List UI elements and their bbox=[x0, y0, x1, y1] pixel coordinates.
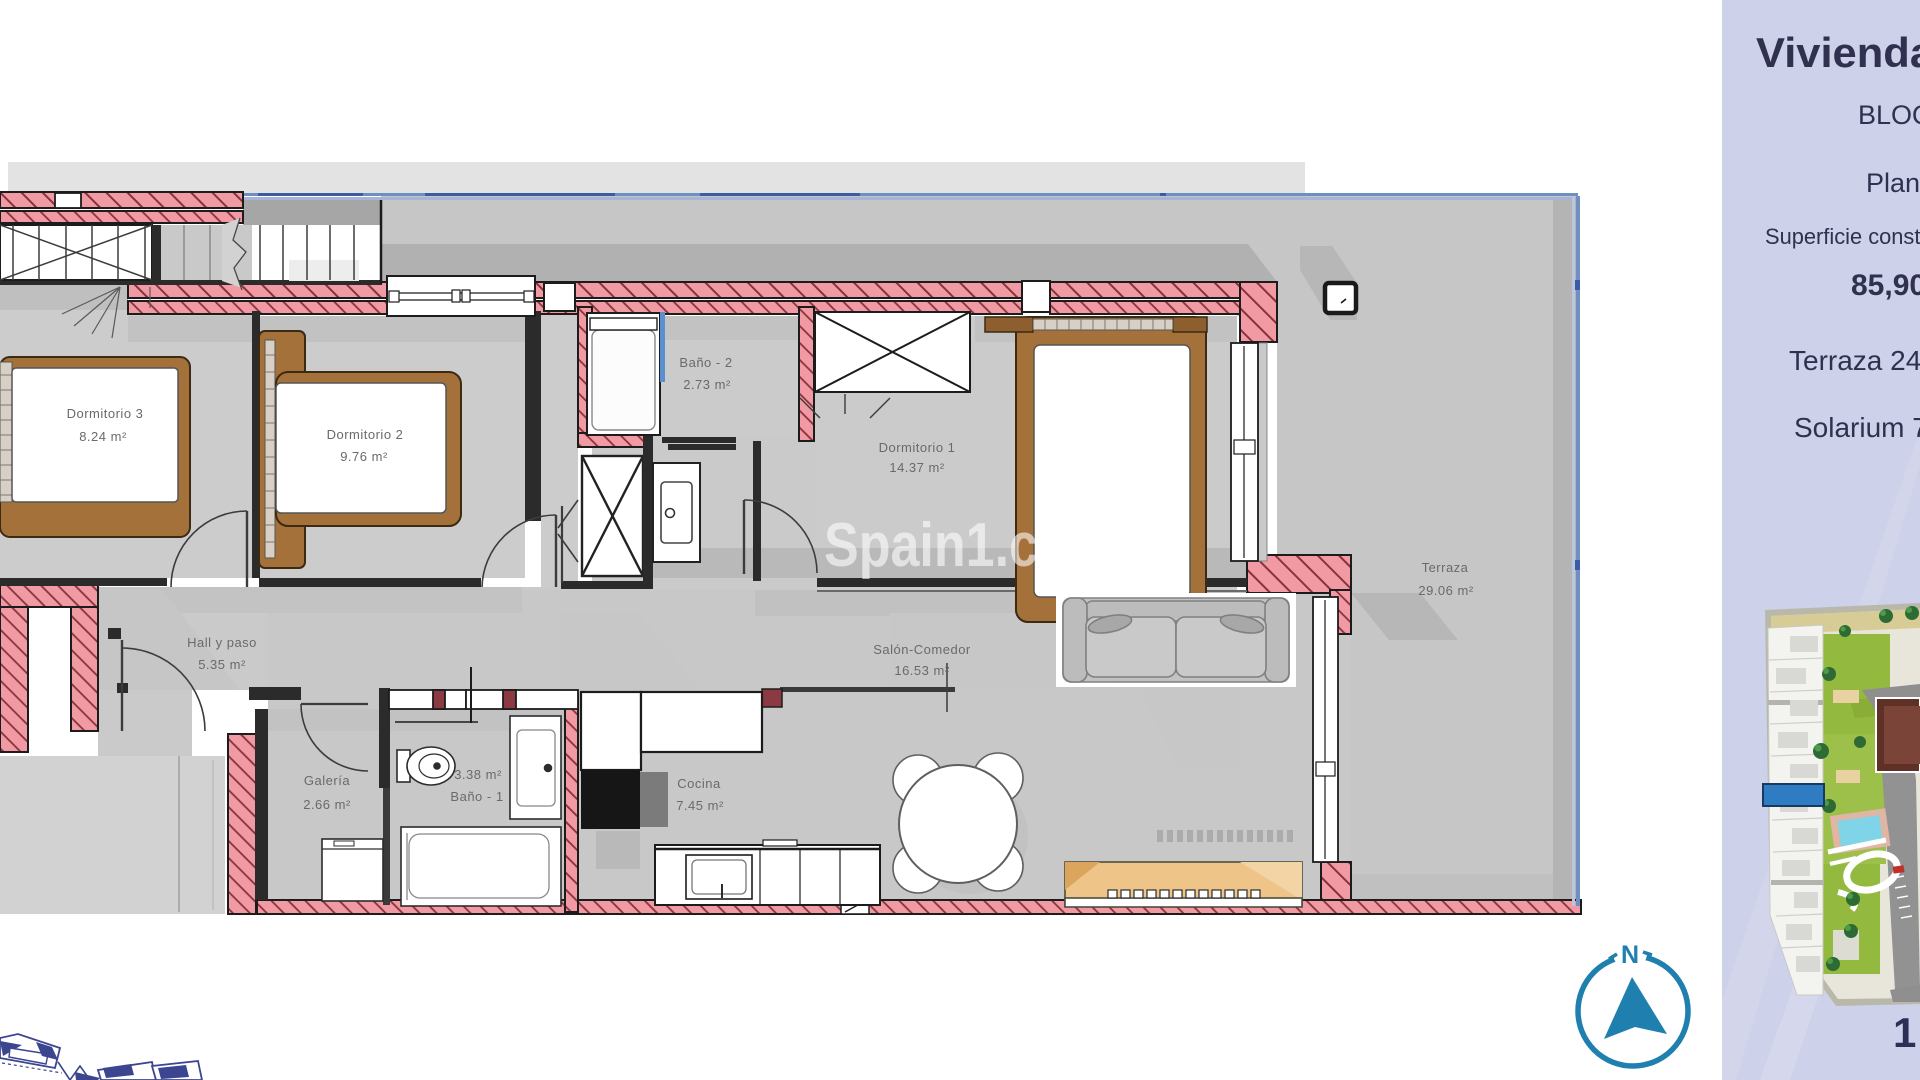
svg-text:Terraza 24,50: Terraza 24,50 bbox=[1789, 345, 1920, 376]
svg-text:Vivienda: Vivienda bbox=[1756, 29, 1920, 76]
svg-text:8.24 m²: 8.24 m² bbox=[79, 429, 127, 444]
svg-text:5.35 m²: 5.35 m² bbox=[198, 657, 246, 672]
svg-text:14.37 m²: 14.37 m² bbox=[889, 460, 944, 475]
svg-text:2.73 m²: 2.73 m² bbox=[683, 377, 731, 392]
svg-text:N: N bbox=[1621, 941, 1639, 969]
svg-text:Superficie construida: Superficie construida bbox=[1765, 224, 1920, 249]
svg-text:Dormitorio 3: Dormitorio 3 bbox=[67, 406, 144, 421]
svg-text:1: 1 bbox=[1893, 1009, 1916, 1056]
svg-text:Hall y paso: Hall y paso bbox=[187, 635, 257, 650]
svg-text:2.66 m²: 2.66 m² bbox=[303, 797, 351, 812]
svg-text:Spain1.com: Spain1.com bbox=[824, 511, 1116, 580]
svg-text:3.38 m²: 3.38 m² bbox=[454, 767, 502, 782]
svg-text:Planta: Planta bbox=[1866, 168, 1920, 198]
svg-text:85,90 m²: 85,90 m² bbox=[1851, 269, 1920, 302]
svg-text:Cocina: Cocina bbox=[677, 776, 721, 791]
svg-text:Terraza: Terraza bbox=[1422, 560, 1469, 575]
svg-text:9.76 m²: 9.76 m² bbox=[340, 449, 388, 464]
svg-text:16.53 m²: 16.53 m² bbox=[894, 663, 949, 678]
svg-text:Solarium 75: Solarium 75 bbox=[1794, 412, 1920, 443]
svg-text:Baño - 2: Baño - 2 bbox=[679, 355, 732, 370]
svg-text:BLOQUE: BLOQUE bbox=[1858, 100, 1920, 130]
svg-text:Baño - 1: Baño - 1 bbox=[450, 789, 503, 804]
svg-text:29.06 m²: 29.06 m² bbox=[1418, 583, 1473, 598]
svg-text:7.45 m²: 7.45 m² bbox=[676, 798, 724, 813]
svg-text:Galería: Galería bbox=[304, 773, 350, 788]
svg-text:Salón-Comedor: Salón-Comedor bbox=[873, 642, 971, 657]
svg-text:Dormitorio 1: Dormitorio 1 bbox=[879, 440, 956, 455]
svg-text:Dormitorio 2: Dormitorio 2 bbox=[327, 427, 404, 442]
